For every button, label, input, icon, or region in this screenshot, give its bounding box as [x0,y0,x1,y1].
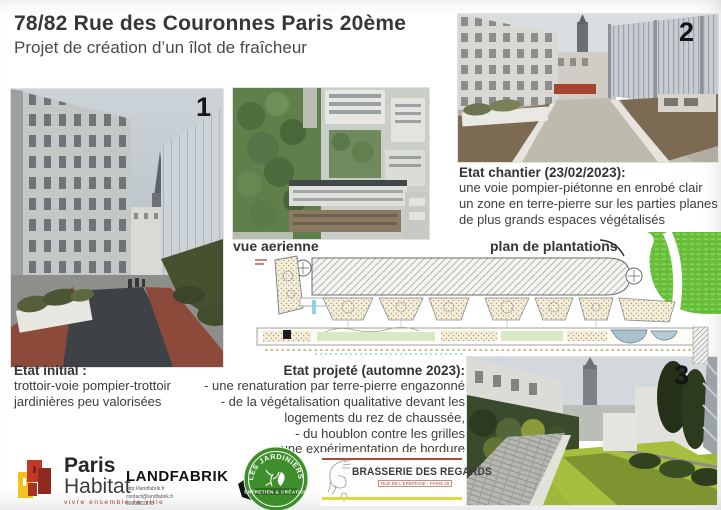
etat-projete-line4: - du houblon contre les grilles [198,426,465,442]
page-subtitle: Projet de création d’un îlot de fraîcheu… [14,38,406,58]
brasserie-name: BRASSERIE DES REGARDS [352,466,492,478]
plan-building-footprint [312,258,630,295]
aerial-caption: vue aerienne [233,238,319,254]
page-title: 78/82 Rue des Couronnes Paris 20ème [14,12,406,36]
etat-chantier-section: Etat chantier (23/02/2023): une voie pom… [459,165,721,228]
brasserie-subtext: RUE DE L'ERMITAGE - PARIS 20 [378,480,452,487]
photo-projete: 3 [466,356,718,506]
landfabrik-url: http://landfabrik.fr [126,486,229,494]
jardiniers-a-velo-logo: LES JARDINIERS A VELO ENTRETIEN & CRÉATI… [243,446,309,510]
jardiniers-a-velo-badge: LES JARDINIERS A VELO ENTRETIEN & CRÉATI… [243,446,309,510]
planting-plan [255,232,721,364]
etat-chantier-line3: de plus grands espaces végétalisés [459,212,721,228]
plan-section-strip [257,320,700,354]
etat-projete-line3: logements du rez de chaussée, [198,410,465,426]
jardiniers-band-text: ENTRETIEN & CRÉATION [244,487,308,494]
street-photo-initial [10,88,224,368]
landfabrik-email: contact@landfabrik.fr [126,494,229,502]
etat-projete-line1: - une renaturation par terre-pierre enga… [198,378,465,394]
landfabrik-phone: 0983581378 [126,501,229,509]
aerial-photo [232,87,430,240]
brasserie-bottom-rule [322,497,462,500]
photo-chantier: 2 [457,13,719,163]
brasserie-des-regards-logo: BRASSERIE DES REGARDS RUE DE L'ERMITAGE … [320,452,464,506]
aerial-view [232,87,430,240]
photo-etat-initial: 1 [10,88,224,368]
brasserie-sketch-icon [320,458,354,502]
etat-chantier-line1: une voie pompier-piétonne en enrobé clai… [459,180,721,196]
document-page: 78/82 Rue des Couronnes Paris 20ème Proj… [0,0,721,510]
etat-chantier-line2: un zone en terre-pierre sur les parties … [459,196,721,212]
red-flowers [554,84,596,94]
paris-habitat-icon [14,456,58,506]
etat-chantier-heading: Etat chantier (23/02/2023): [459,165,721,180]
plan-drawing [255,232,721,369]
plan-caption: plan de plantations [490,238,618,254]
landfabrik-name: LANDFABRIK [126,468,229,485]
aerial-main-building [289,180,407,206]
plan-red-annotation [255,260,267,264]
header: 78/82 Rue des Couronnes Paris 20ème Proj… [14,12,406,58]
figure-number-2: 2 [679,19,694,46]
figure-number-1: 1 [196,94,211,121]
etat-projete-line2: - de la végétalisation qualitative devan… [198,394,465,410]
plan-planting-beds [323,298,675,322]
